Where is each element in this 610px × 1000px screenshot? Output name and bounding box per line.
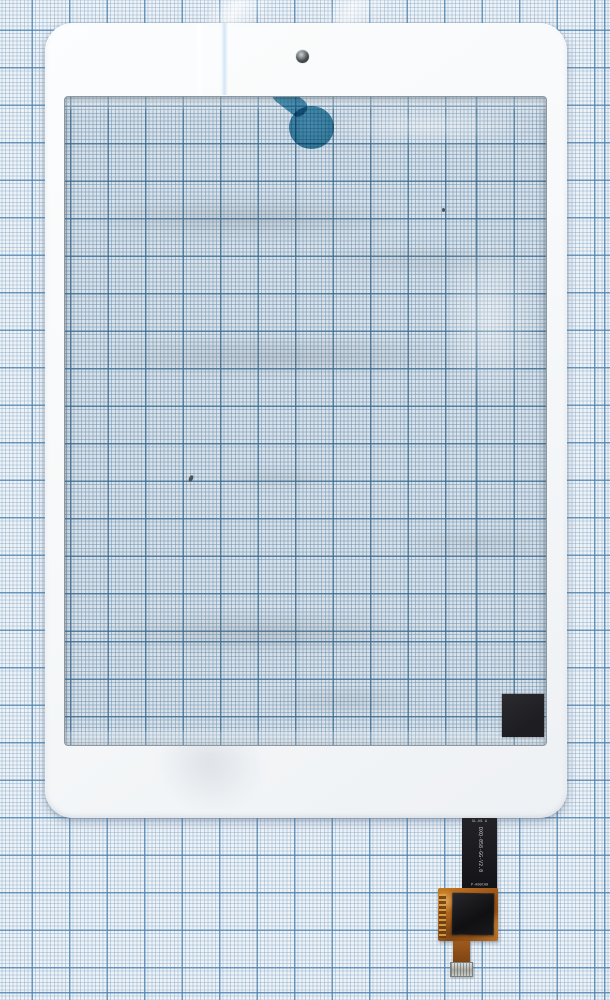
- black-alignment-square: [502, 694, 544, 737]
- flex-ribbon: GL-N1 A DXQ-058-GG-V2.0 P-A00CA0: [462, 818, 497, 889]
- glass-smudge: [73, 335, 483, 377]
- flex-label-bottom: P-A00CA0: [467, 883, 492, 887]
- dust-speck: [442, 208, 445, 212]
- flex-pcb: [438, 888, 498, 941]
- glass-smudge: [393, 525, 547, 561]
- touch-controller-chip: [452, 893, 495, 936]
- glass-smudge: [263, 685, 428, 715]
- solder-pads: [439, 894, 446, 938]
- glass-smudge: [93, 610, 438, 656]
- glass-smudge: [213, 465, 343, 491]
- glass-window: [64, 96, 547, 746]
- glass-smudge: [81, 195, 411, 241]
- flex-tail: [453, 941, 470, 963]
- product-photo: GL-N1 A DXQ-058-GG-V2.0 P-A00CA0: [0, 0, 610, 1000]
- flex-label-top: GL-N1 A: [467, 819, 492, 823]
- bezel-reflection-streak: [195, 23, 204, 95]
- dust-speck: [188, 474, 195, 482]
- glass-smudge: [303, 245, 535, 275]
- glass-reflection: [313, 105, 538, 147]
- flex-label-vertical: DXQ-058-GG-V2.0: [477, 827, 482, 872]
- camera-hole: [296, 50, 309, 63]
- bezel-reflection-streak: [221, 23, 228, 95]
- connector-tip: [450, 962, 473, 977]
- digitizer-panel: [45, 23, 567, 818]
- glass-reflection: [65, 731, 547, 746]
- flex-cable-assembly: GL-N1 A DXQ-058-GG-V2.0 P-A00CA0: [438, 818, 518, 980]
- tape-blob: [289, 106, 334, 149]
